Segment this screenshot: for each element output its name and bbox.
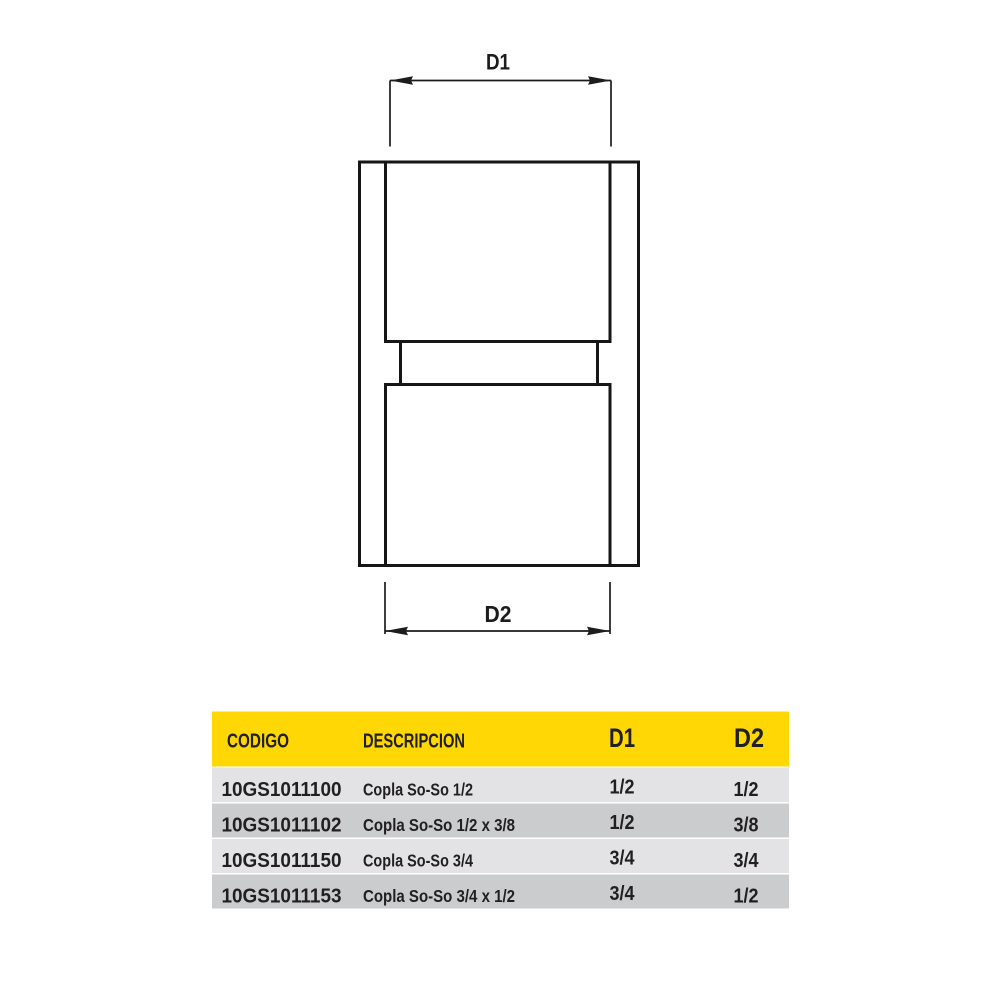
svg-text:10GS1011102: 10GS1011102	[222, 815, 342, 837]
svg-text:Copla So-So 3/4 x 1/2: Copla So-So 3/4 x 1/2	[363, 886, 515, 906]
svg-text:10GS1011100: 10GS1011100	[222, 779, 342, 801]
svg-text:D2: D2	[734, 723, 764, 753]
svg-text:D1: D1	[609, 723, 635, 753]
svg-text:1/2: 1/2	[610, 811, 635, 834]
svg-text:1/2: 1/2	[734, 885, 759, 908]
svg-text:D1: D1	[486, 50, 510, 75]
svg-text:3/4: 3/4	[610, 847, 636, 870]
svg-text:CODIGO: CODIGO	[227, 730, 289, 753]
svg-text:Copla So-So 3/4: Copla So-So 3/4	[363, 851, 473, 871]
svg-text:3/4: 3/4	[610, 882, 636, 905]
svg-text:Copla So-So 1/2 x 3/8: Copla So-So 1/2 x 3/8	[363, 815, 515, 835]
svg-text:10GS1011150: 10GS1011150	[222, 850, 342, 872]
svg-text:1/2: 1/2	[610, 776, 635, 799]
svg-text:DESCRIPCION: DESCRIPCION	[363, 730, 465, 753]
svg-text:10GS1011153: 10GS1011153	[222, 886, 342, 908]
svg-text:D2: D2	[485, 601, 512, 627]
svg-text:1/2: 1/2	[734, 778, 759, 801]
svg-text:3/8: 3/8	[734, 814, 759, 837]
svg-text:Copla So-So 1/2: Copla So-So 1/2	[363, 780, 473, 800]
svg-text:3/4: 3/4	[734, 849, 760, 872]
